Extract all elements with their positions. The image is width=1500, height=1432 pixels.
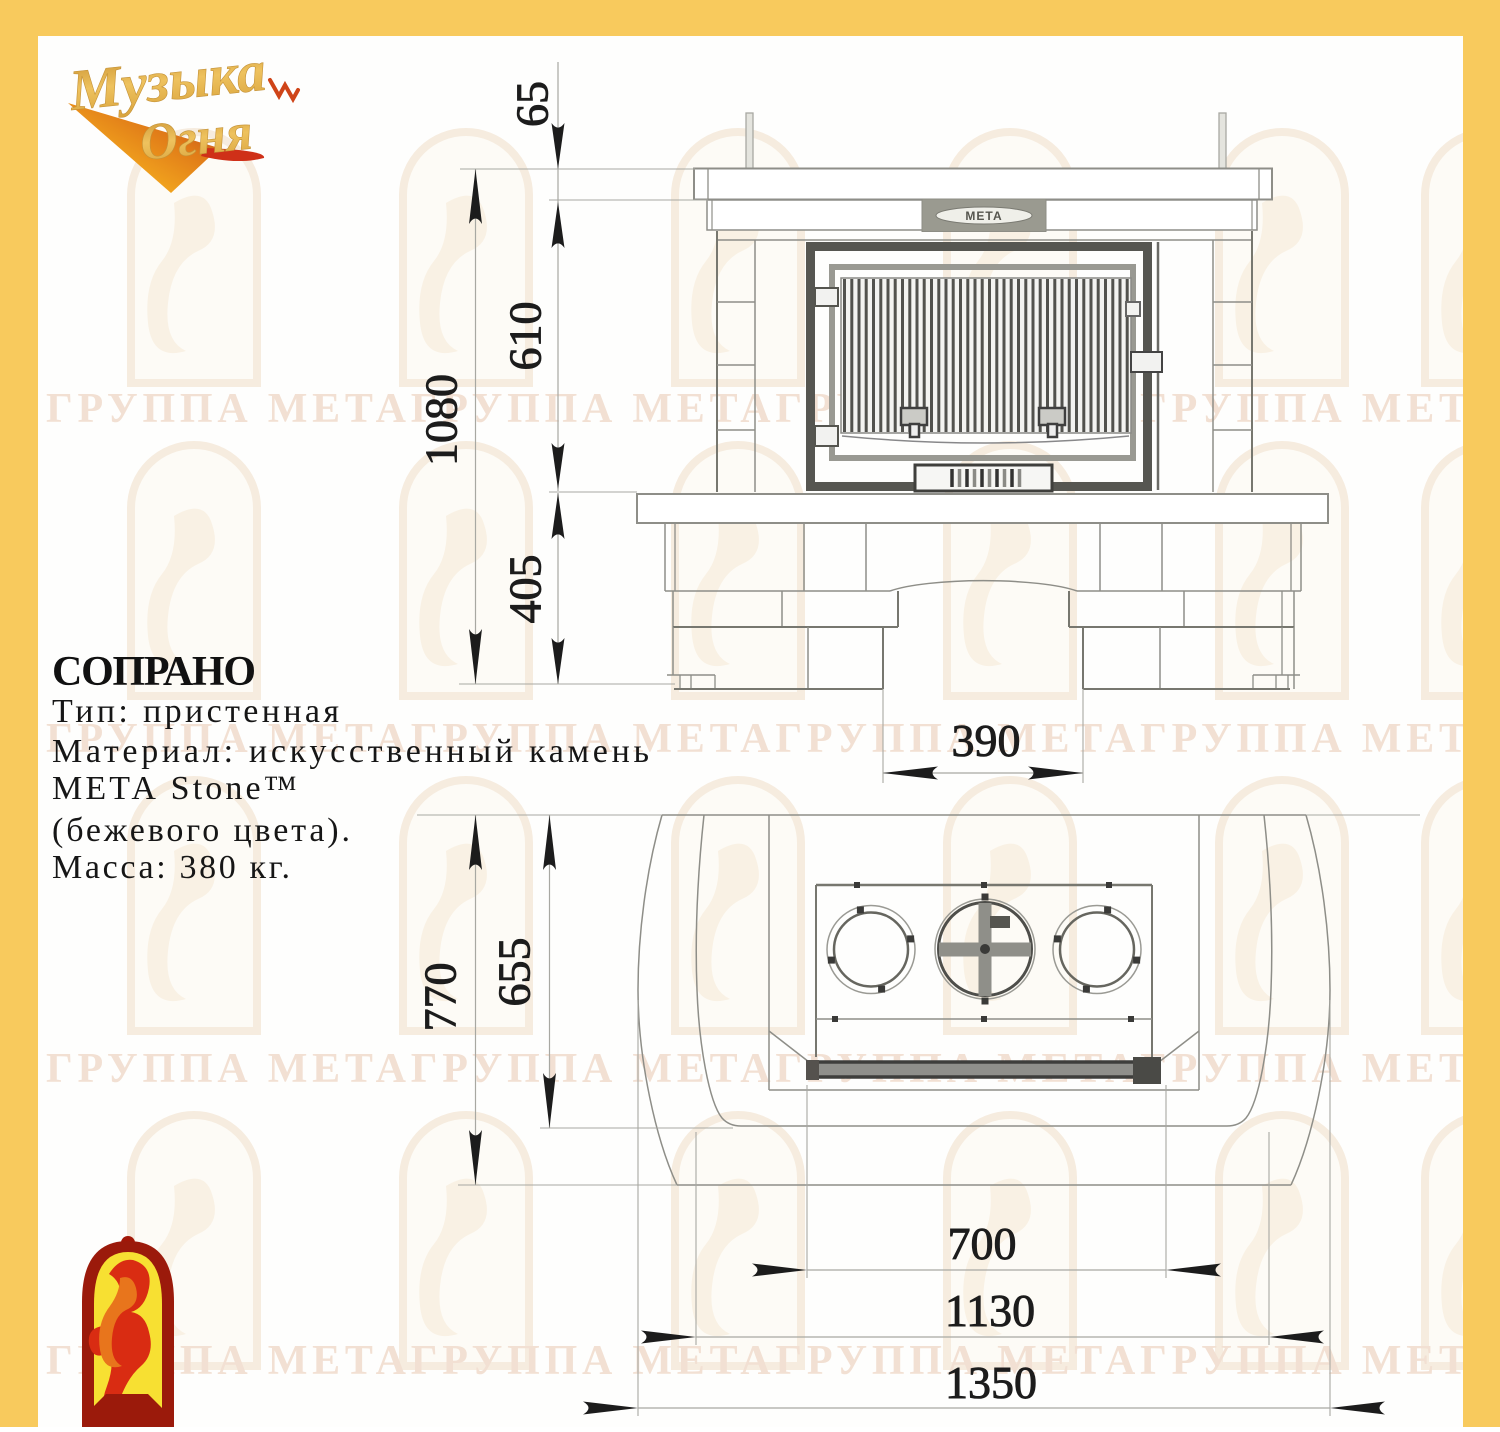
svg-text:1350: 1350 [945, 1357, 1037, 1408]
svg-text:770: 770 [415, 963, 466, 1032]
svg-text:Материал: искусственный камень: Материал: искусственный камень [52, 733, 649, 770]
svg-text:405: 405 [500, 555, 551, 624]
svg-text:610: 610 [500, 302, 551, 371]
svg-text:Огня: Огня [137, 103, 255, 171]
svg-text:1080: 1080 [416, 374, 467, 466]
svg-text:СОПРАНО: СОПРАНО [52, 649, 256, 695]
svg-text:390: 390 [952, 715, 1021, 766]
svg-text:МЕТА Stone™: МЕТА Stone™ [52, 770, 297, 807]
svg-text:1130: 1130 [945, 1285, 1035, 1336]
svg-text:МЕТА: МЕТА [965, 209, 1002, 223]
svg-text:65: 65 [507, 81, 558, 127]
svg-text:Масса: 380 кг.: Масса: 380 кг. [52, 849, 290, 886]
svg-text:700: 700 [948, 1218, 1017, 1269]
svg-text:655: 655 [489, 938, 540, 1007]
